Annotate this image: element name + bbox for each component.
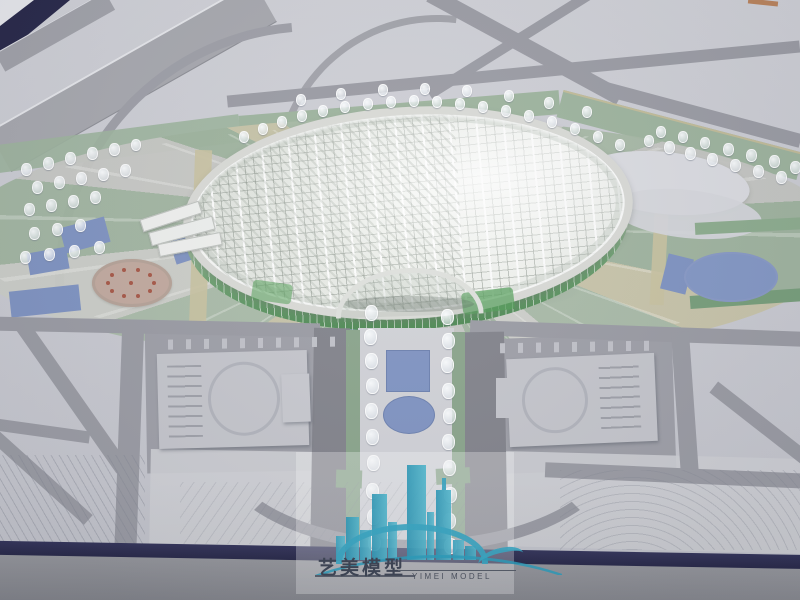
building-plate-right xyxy=(506,353,658,447)
tree xyxy=(318,105,328,117)
tree xyxy=(68,195,79,208)
plaza-dot xyxy=(148,289,152,293)
tree xyxy=(547,116,557,128)
tree xyxy=(363,98,373,110)
etched-arcs-se xyxy=(560,470,800,550)
plate-right-oval xyxy=(521,366,590,435)
tree xyxy=(746,149,757,162)
tree xyxy=(120,164,131,177)
tree xyxy=(131,139,141,151)
road-sw-short xyxy=(0,418,90,443)
building-plate-left-wing xyxy=(281,374,311,423)
watermark-underline-1 xyxy=(315,575,415,577)
tree xyxy=(615,139,625,151)
tree xyxy=(776,171,787,184)
tree xyxy=(769,155,780,168)
tree xyxy=(365,353,378,369)
plaza-dot xyxy=(148,273,152,277)
plaza-dot xyxy=(136,268,140,272)
building-plate-right-notch xyxy=(496,378,514,418)
model-photo: 艺美模型 YIMEI MODEL xyxy=(0,0,800,600)
tree xyxy=(707,153,718,166)
tree xyxy=(69,245,80,258)
tree xyxy=(364,329,377,345)
tree xyxy=(432,96,442,108)
plaza-dot xyxy=(106,281,110,285)
tree xyxy=(297,110,307,122)
tree xyxy=(644,135,654,147)
tree xyxy=(442,383,455,399)
tree xyxy=(442,434,455,450)
tree xyxy=(365,403,378,419)
tree xyxy=(76,172,87,185)
etched-blocks-sw xyxy=(0,455,145,555)
plate-left-hatch xyxy=(167,365,203,438)
tree xyxy=(29,227,40,240)
tree xyxy=(109,143,120,156)
watermark: 艺美模型 YIMEI MODEL xyxy=(296,452,514,594)
tree xyxy=(21,163,32,176)
tree xyxy=(664,141,675,154)
tree xyxy=(420,83,430,95)
tree xyxy=(753,165,764,178)
tree xyxy=(24,203,35,216)
tree xyxy=(32,181,43,194)
tree xyxy=(52,223,63,236)
tree xyxy=(365,305,378,321)
tree xyxy=(43,157,54,170)
plaza-dot xyxy=(152,281,156,285)
plate-left-oval xyxy=(207,361,281,437)
tree xyxy=(277,116,287,128)
tree xyxy=(20,251,31,264)
tree xyxy=(94,241,105,254)
pond-right xyxy=(684,252,778,302)
tree xyxy=(730,159,741,172)
plate-right-hatch xyxy=(598,364,641,430)
plaza-dot xyxy=(122,268,126,272)
plaza-dot xyxy=(110,289,114,293)
tree xyxy=(685,147,696,160)
tree xyxy=(65,152,76,165)
tree xyxy=(723,143,734,156)
tree xyxy=(44,248,55,261)
tree xyxy=(443,408,456,424)
tree xyxy=(378,84,388,96)
tree xyxy=(336,88,346,100)
tree xyxy=(87,147,98,160)
tree xyxy=(296,94,306,106)
orange-detail xyxy=(748,0,778,7)
tree xyxy=(462,85,472,97)
tree xyxy=(366,378,379,394)
tree xyxy=(258,123,268,135)
tree xyxy=(501,105,511,117)
tree xyxy=(678,131,688,143)
tree xyxy=(340,101,350,113)
plaza-dot xyxy=(129,281,133,285)
plaza-dot xyxy=(136,294,140,298)
watermark-underline-2 xyxy=(398,570,516,571)
tree xyxy=(570,123,580,135)
tree xyxy=(46,199,57,212)
tree xyxy=(790,161,800,174)
tree xyxy=(582,106,592,118)
tree xyxy=(366,429,379,445)
tree xyxy=(700,137,710,149)
watermark-brand-en: YIMEI MODEL xyxy=(412,572,492,581)
tree xyxy=(656,126,666,138)
tree xyxy=(386,96,396,108)
tree xyxy=(54,176,65,189)
tree xyxy=(90,191,101,204)
tree xyxy=(442,333,455,349)
tree xyxy=(75,219,86,232)
tree xyxy=(504,90,514,102)
plaza-dot xyxy=(122,294,126,298)
tree xyxy=(478,101,488,113)
tree xyxy=(98,168,109,181)
tree xyxy=(524,110,534,122)
skyline-spire xyxy=(442,478,446,490)
plaza-dot xyxy=(110,273,114,277)
tree xyxy=(441,357,454,373)
tree xyxy=(455,98,465,110)
tree xyxy=(593,131,603,143)
tree xyxy=(409,95,419,107)
tree xyxy=(544,97,554,109)
tree xyxy=(239,131,249,143)
tree xyxy=(441,309,454,325)
